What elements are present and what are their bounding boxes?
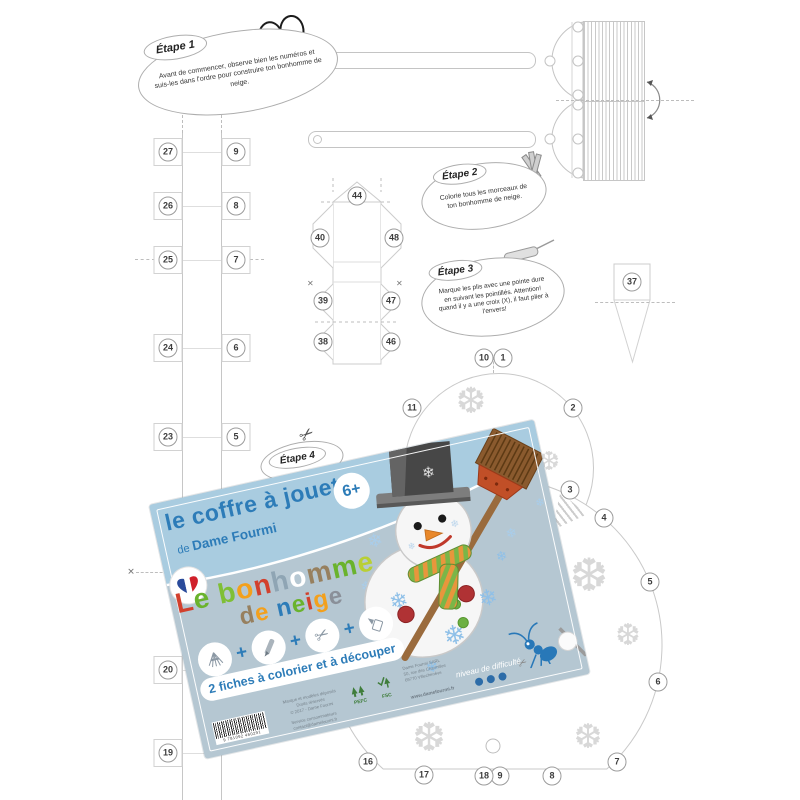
- cut-dash: [221, 115, 222, 133]
- part-number: 6: [649, 673, 668, 692]
- part-number: 17: [415, 766, 434, 785]
- barcode: 9 781092 460291: [212, 711, 270, 745]
- legal-text: Marque et modèles déposés Droits réservé…: [278, 687, 347, 737]
- broom-handle-template: [308, 52, 536, 69]
- snowflake-cutout: ❆: [412, 718, 446, 758]
- part-number: 16: [359, 753, 378, 772]
- part-number: 3: [561, 481, 580, 500]
- part-number: 4: [595, 509, 614, 528]
- nose-cone-template: [598, 250, 674, 368]
- part-number: 1: [494, 349, 513, 368]
- snowflake-cutout: ❆: [574, 720, 603, 754]
- pefc-logo: PEFC: [345, 683, 373, 708]
- craft-sheet-page: ✕ ✕ ✕: [0, 0, 800, 800]
- snowflake-cutout: ❆: [615, 621, 640, 651]
- fold-dash: [595, 302, 675, 303]
- svg-text:✕: ✕: [307, 279, 314, 288]
- part-number: 47: [382, 292, 401, 311]
- part-number: 44: [348, 187, 367, 206]
- part-number: 7: [608, 753, 627, 772]
- svg-text:❄: ❄: [495, 548, 509, 565]
- svg-text:✕: ✕: [396, 279, 403, 288]
- fold-dash: [556, 100, 694, 101]
- part-number: 48: [385, 229, 404, 248]
- snowflake-cutout: ❆: [456, 383, 486, 419]
- part-number: 23: [159, 428, 178, 447]
- fold-arrow-icon: [642, 76, 668, 124]
- part-number: 8: [543, 767, 562, 786]
- part-number: 26: [159, 197, 178, 216]
- part-number: 5: [227, 428, 246, 447]
- cut-dash: [182, 115, 183, 133]
- part-number: 11: [403, 399, 422, 418]
- step-1-balloon: Étape 1 Avant de commencer, observe bien…: [132, 16, 344, 129]
- broom-bristles-template: [583, 21, 645, 102]
- part-number: 40: [311, 229, 330, 248]
- part-number: 38: [314, 333, 333, 352]
- snowflake-cutout: ❆: [570, 552, 609, 598]
- fold-dash: [135, 259, 155, 260]
- part-number: 7: [227, 251, 246, 270]
- reverse-fold-mark: ✕: [127, 567, 135, 578]
- part-number: 2: [564, 399, 583, 418]
- part-number: 5: [641, 573, 660, 592]
- part-number: 9: [227, 143, 246, 162]
- broom-bristles-template: [583, 101, 645, 181]
- part-number: 19: [159, 744, 178, 763]
- part-number: 8: [227, 197, 246, 216]
- part-number: 24: [159, 339, 178, 358]
- part-number: 27: [159, 143, 178, 162]
- part-number: 37: [623, 273, 642, 292]
- part-number: 39: [314, 292, 333, 311]
- broom-handle-template: [308, 131, 536, 148]
- part-number: 18: [475, 767, 494, 786]
- svg-text:❄: ❄: [476, 584, 500, 612]
- fold-dash: [250, 259, 264, 260]
- svg-text:❄: ❄: [504, 525, 518, 542]
- svg-text:❄: ❄: [534, 496, 546, 510]
- part-number: 46: [382, 333, 401, 352]
- part-number: 10: [475, 349, 494, 368]
- svg-text:❄: ❄: [421, 464, 435, 482]
- part-number: 20: [159, 661, 178, 680]
- part-number: 6: [227, 339, 246, 358]
- part-number: 25: [159, 251, 178, 270]
